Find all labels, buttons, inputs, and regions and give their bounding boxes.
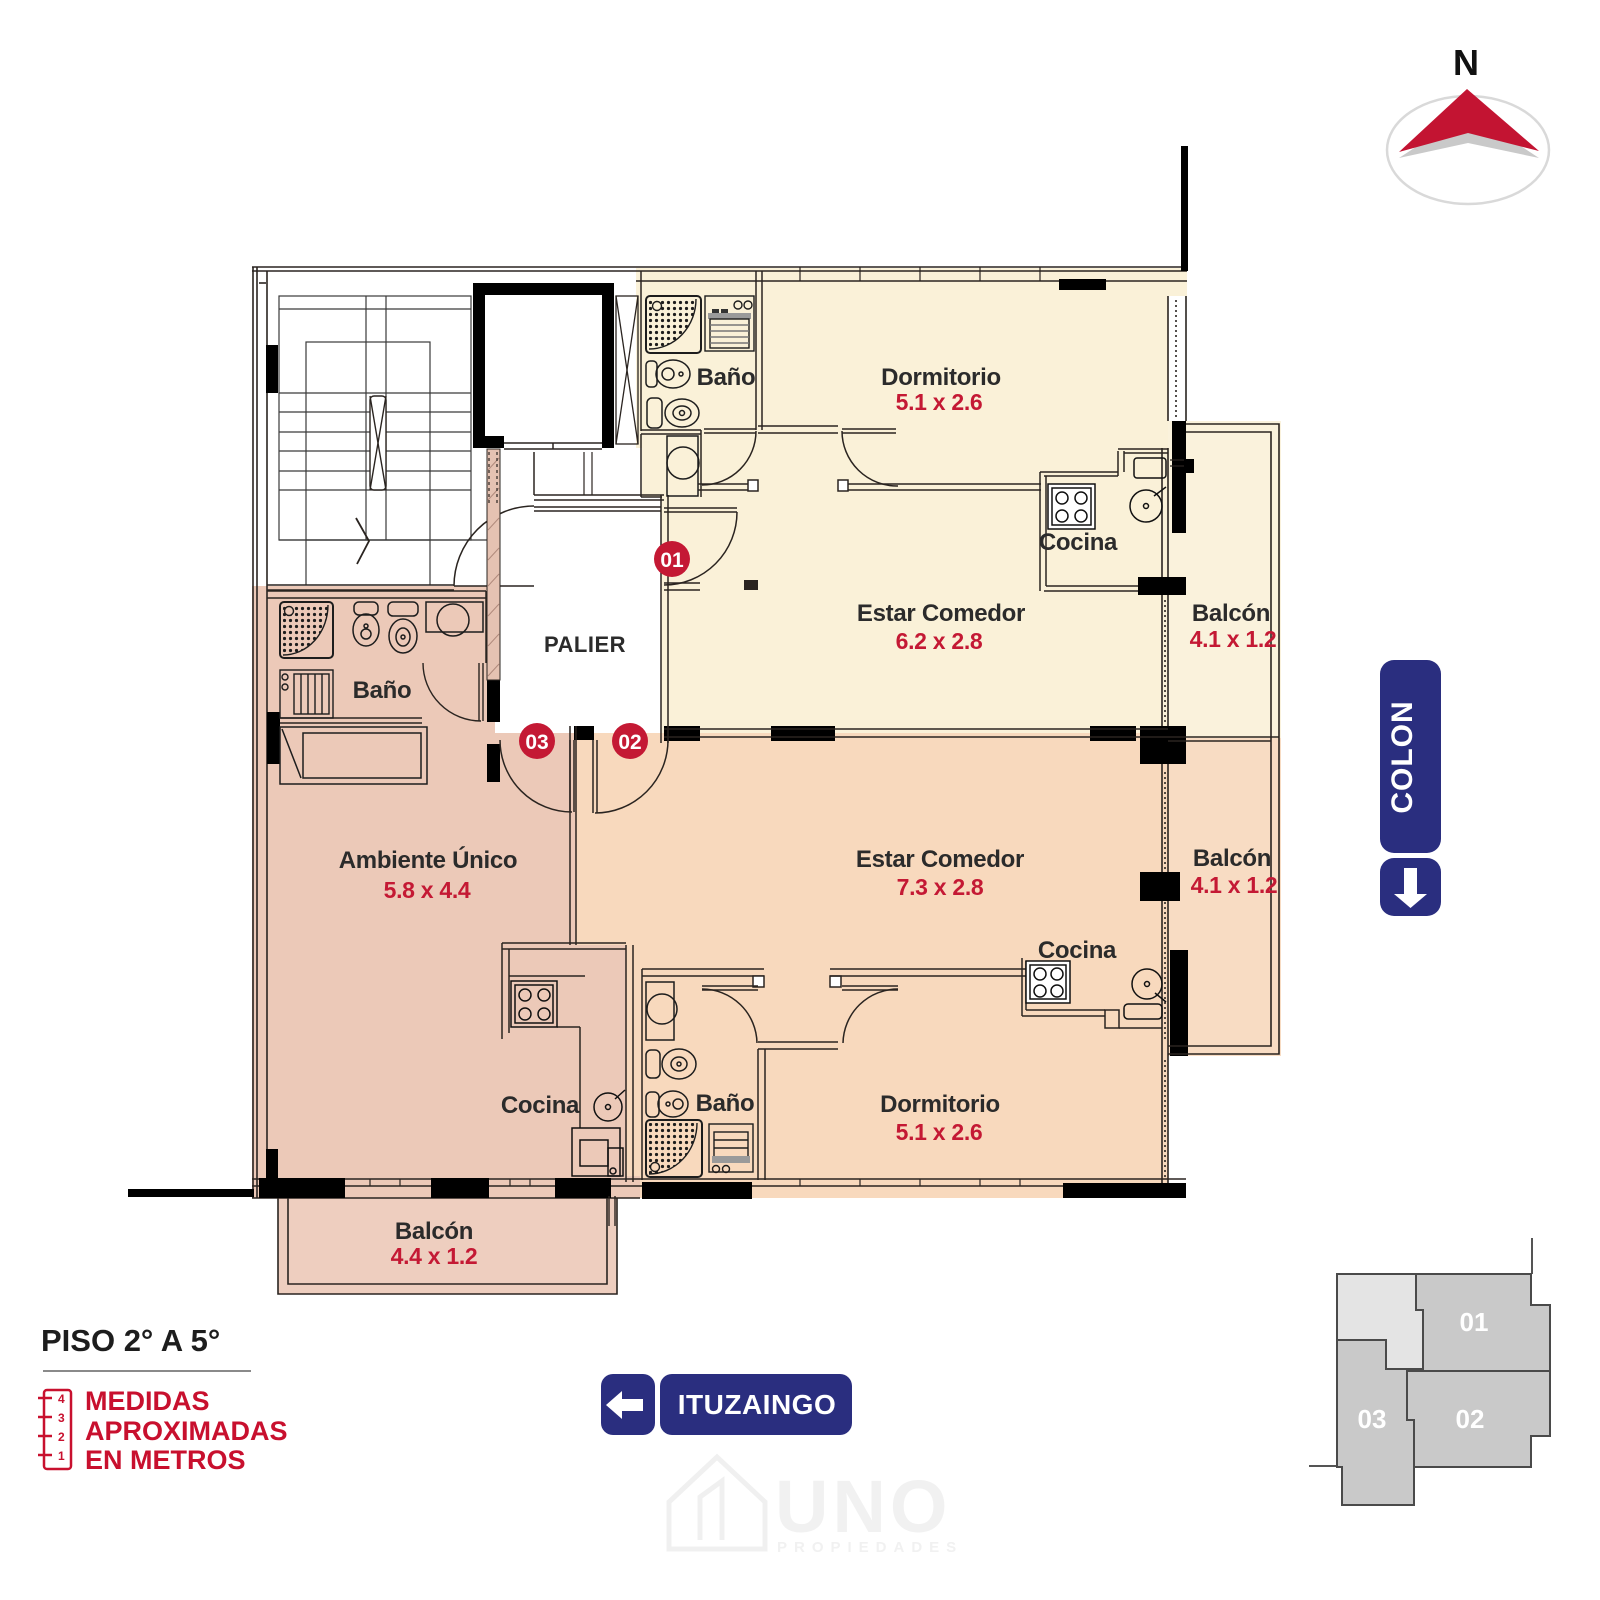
svg-text:Cocina: Cocina bbox=[501, 1092, 580, 1119]
svg-text:PROPIEDADES: PROPIEDADES bbox=[777, 1539, 963, 1556]
svg-text:01: 01 bbox=[660, 549, 684, 572]
svg-text:7.3 x 2.8: 7.3 x 2.8 bbox=[897, 874, 984, 900]
svg-text:PISO 2° A 5°: PISO 2° A 5° bbox=[41, 1323, 220, 1358]
svg-text:4.4 x 1.2: 4.4 x 1.2 bbox=[391, 1243, 478, 1269]
svg-text:4.1 x 1.2: 4.1 x 1.2 bbox=[1190, 626, 1277, 652]
svg-text:MEDIDAS: MEDIDAS bbox=[85, 1386, 210, 1416]
svg-text:Estar Comedor: Estar Comedor bbox=[856, 846, 1024, 873]
svg-text:Ambiente Único: Ambiente Único bbox=[339, 846, 517, 874]
svg-text:1: 1 bbox=[58, 1449, 65, 1463]
svg-text:6.2 x 2.8: 6.2 x 2.8 bbox=[896, 628, 983, 654]
svg-text:3: 3 bbox=[58, 1411, 65, 1425]
svg-text:ITUZAINGO: ITUZAINGO bbox=[678, 1389, 837, 1420]
svg-text:5.1 x 2.6: 5.1 x 2.6 bbox=[896, 389, 983, 415]
svg-text:Baño: Baño bbox=[353, 677, 412, 704]
svg-text:COLON: COLON bbox=[1386, 700, 1419, 813]
svg-text:N: N bbox=[1453, 42, 1479, 83]
svg-text:Dormitorio: Dormitorio bbox=[881, 364, 1001, 391]
svg-text:Dormitorio: Dormitorio bbox=[880, 1091, 1000, 1118]
svg-text:APROXIMADAS: APROXIMADAS bbox=[85, 1416, 288, 1446]
svg-text:Baño: Baño bbox=[697, 364, 756, 391]
svg-text:5.1 x 2.6: 5.1 x 2.6 bbox=[896, 1119, 983, 1145]
svg-text:03: 03 bbox=[525, 731, 548, 754]
svg-text:Balcón: Balcón bbox=[1193, 845, 1271, 872]
svg-text:Cocina: Cocina bbox=[1039, 529, 1118, 556]
svg-text:4.1 x 1.2: 4.1 x 1.2 bbox=[1191, 872, 1278, 898]
svg-text:4: 4 bbox=[58, 1392, 65, 1406]
svg-text:02: 02 bbox=[618, 731, 641, 754]
svg-text:5.8 x 4.4: 5.8 x 4.4 bbox=[384, 877, 471, 903]
svg-text:01: 01 bbox=[1460, 1307, 1489, 1337]
svg-text:PALIER: PALIER bbox=[544, 632, 626, 657]
svg-text:03: 03 bbox=[1358, 1404, 1387, 1434]
svg-text:2: 2 bbox=[58, 1430, 65, 1444]
svg-text:UNO: UNO bbox=[775, 1465, 951, 1548]
svg-text:Cocina: Cocina bbox=[1038, 937, 1117, 964]
svg-text:EN METROS: EN METROS bbox=[85, 1445, 246, 1475]
svg-text:Estar Comedor: Estar Comedor bbox=[857, 600, 1025, 627]
svg-text:Balcón: Balcón bbox=[395, 1218, 473, 1245]
svg-text:02: 02 bbox=[1456, 1404, 1485, 1434]
svg-text:Baño: Baño bbox=[696, 1090, 755, 1117]
svg-text:Balcón: Balcón bbox=[1192, 600, 1270, 627]
